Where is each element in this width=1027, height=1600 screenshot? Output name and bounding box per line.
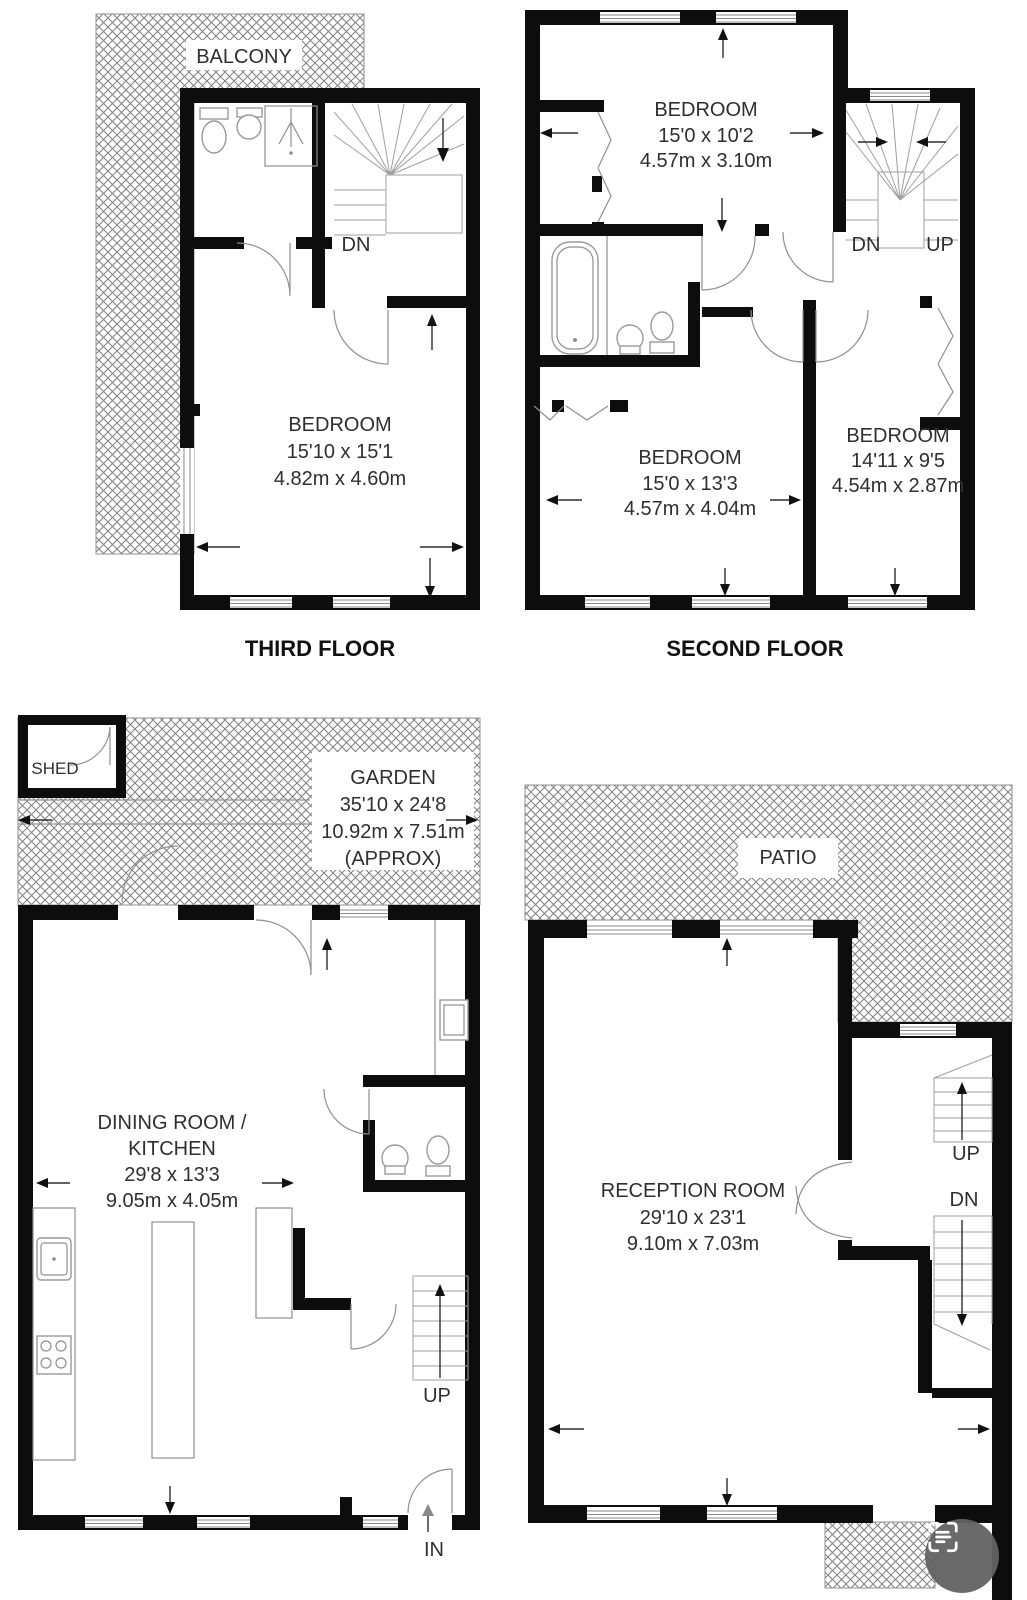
ground-floor-plan: SHED GARDEN 35'10 x 24'8 10.92m x 7.51m … xyxy=(18,715,480,1561)
toilet-icon xyxy=(200,108,228,119)
second-floor-plan: DN UP BEDROOM 15'0 x 10'2 4.57m x 3.10m … xyxy=(525,10,975,661)
dining-size-imperial: 29'8 x 13'3 xyxy=(124,1164,220,1186)
ground-floor-windows xyxy=(85,907,398,1528)
shed-label: SHED xyxy=(31,759,78,778)
kitchen-counter-right xyxy=(256,1208,292,1318)
bedroom-size-metric: 4.82m x 4.60m xyxy=(274,468,406,490)
bathroom-door-arc xyxy=(237,243,290,296)
bedroom-left-size-metric: 4.57m x 4.04m xyxy=(624,498,756,520)
second-floor-label: SECOND FLOOR xyxy=(666,636,843,661)
bedroom-left-name: BEDROOM xyxy=(638,447,741,469)
patio-lower-hatch xyxy=(825,1522,935,1588)
first-floor-plan: PATIO xyxy=(525,785,1012,1600)
garden-approx: (APPROX) xyxy=(345,848,442,870)
ground-floor-wc xyxy=(324,1089,450,1176)
reception-size-metric: 9.10m x 7.03m xyxy=(627,1233,759,1255)
bedroom-top-name: BEDROOM xyxy=(654,99,757,121)
scan-floorplan-button[interactable] xyxy=(925,1519,999,1593)
bedroom-right-name: BEDROOM xyxy=(846,425,949,447)
patio-label: PATIO xyxy=(759,847,816,869)
bedroom-top-size-metric: 4.57m x 3.10m xyxy=(640,150,772,172)
reception-name: RECEPTION ROOM xyxy=(601,1180,785,1202)
dining-name-line1: DINING ROOM / xyxy=(98,1112,247,1134)
stairs-up-label: UP xyxy=(926,234,954,256)
stairs-down-label: DN xyxy=(342,234,371,256)
entrance-label: IN xyxy=(424,1539,444,1561)
stairs-up-label: UP xyxy=(952,1143,980,1165)
third-floor-walls xyxy=(180,88,480,610)
third-floor-stairs: DN xyxy=(334,104,464,256)
kitchen-island xyxy=(152,1222,194,1458)
stairs-up-label: UP xyxy=(423,1385,451,1407)
toilet-icon xyxy=(427,1136,449,1164)
bathroom-door-arc xyxy=(702,236,755,290)
garden-size-metric: 10.92m x 7.51m xyxy=(321,821,464,843)
ground-floor-walls xyxy=(18,905,480,1530)
wc-door-arc xyxy=(324,1089,369,1134)
bathtub-icon xyxy=(552,242,598,354)
bedroom-right-size-imperial: 14'11 x 9'5 xyxy=(851,450,945,472)
bedroom-top-size-imperial: 15'0 x 10'2 xyxy=(658,125,754,147)
patio-hatch xyxy=(525,785,1012,1022)
first-floor-stairs-down: DN xyxy=(934,1189,992,1350)
ground-floor-door-arcs xyxy=(256,920,452,1513)
stairs-down-label: DN xyxy=(852,234,881,256)
garden-name: GARDEN xyxy=(350,767,436,789)
first-floor-stairs-up: UP xyxy=(934,1055,992,1165)
first-floor-walls xyxy=(528,920,1012,1600)
floorplan-drawing: BALCONY xyxy=(0,0,1027,1600)
ground-floor-stairs: UP xyxy=(413,1276,468,1407)
balcony-label: BALCONY xyxy=(196,46,292,68)
second-floor-bathroom xyxy=(552,236,755,355)
scan-document-icon xyxy=(925,1519,961,1555)
entrance: IN xyxy=(422,1504,444,1561)
third-floor-bathroom xyxy=(200,106,317,296)
bedroom-name: BEDROOM xyxy=(288,414,391,436)
dining-size-metric: 9.05m x 4.05m xyxy=(106,1190,238,1212)
bedroom-door-arc xyxy=(334,310,388,364)
toilet-icon xyxy=(651,312,673,340)
bedroom-size-imperial: 15'10 x 15'1 xyxy=(287,441,394,463)
hob-icon xyxy=(37,1336,71,1374)
floorplan-page: BALCONY xyxy=(0,0,1027,1600)
bedroom-left-size-imperial: 15'0 x 13'3 xyxy=(642,473,738,495)
shed: SHED xyxy=(18,715,126,798)
third-floor-plan: BALCONY xyxy=(96,14,480,661)
garden-size-imperial: 35'10 x 24'8 xyxy=(340,794,447,816)
ground-floor-dimension-arrows xyxy=(36,938,332,1514)
third-floor-label: THIRD FLOOR xyxy=(245,636,395,661)
second-floor-stairs: DN UP xyxy=(846,104,958,256)
bedroom-right-size-metric: 4.54m x 2.87m xyxy=(832,475,964,497)
stairs-down-label: DN xyxy=(950,1189,979,1211)
dining-name-line2: KITCHEN xyxy=(128,1138,216,1160)
reception-double-door-arcs xyxy=(796,1162,852,1238)
reception-size-imperial: 29'10 x 23'1 xyxy=(640,1207,747,1229)
